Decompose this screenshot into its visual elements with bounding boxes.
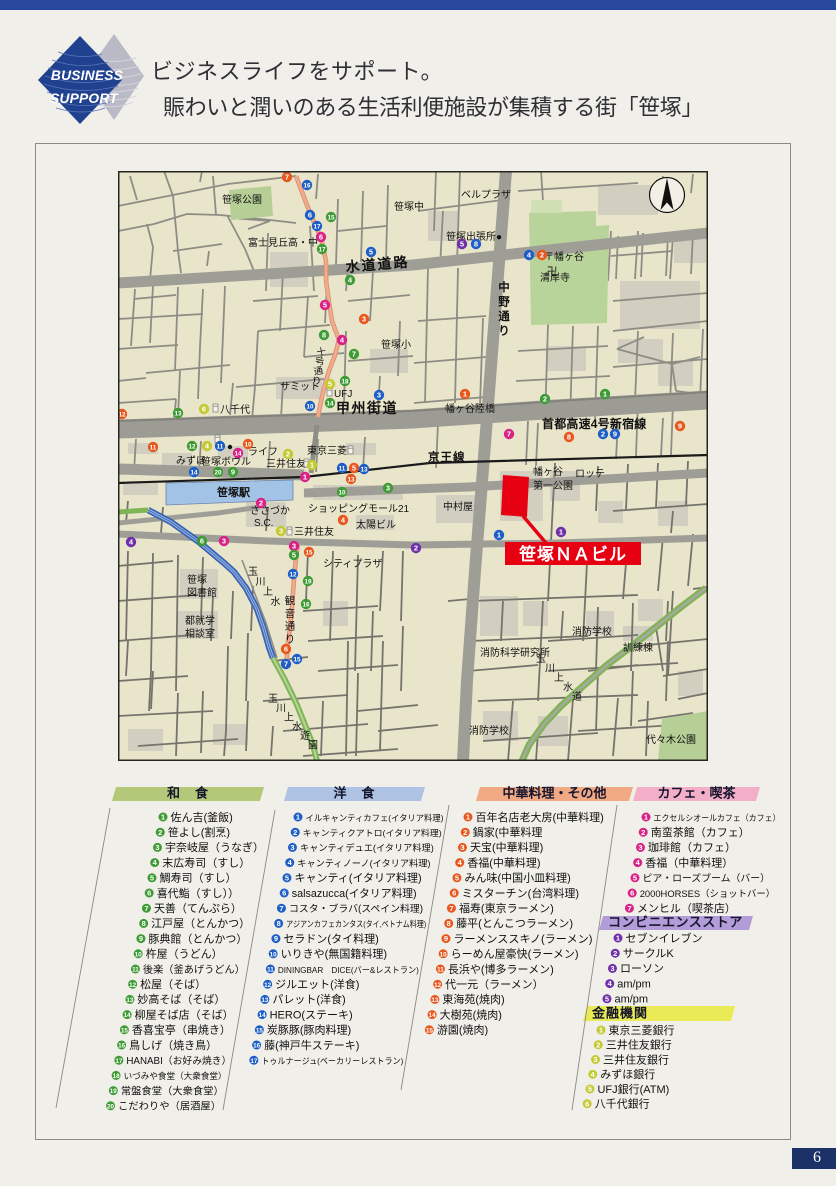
svg-text:am/pm: am/pm [617, 978, 651, 990]
svg-text:17: 17 [313, 224, 321, 231]
svg-text:天善（てんぷら）: 天善（てんぷら） [154, 901, 242, 915]
svg-text:18: 18 [113, 1073, 121, 1080]
svg-text:笹よし(割烹): 笹よし(割烹) [168, 825, 230, 839]
svg-text:3: 3 [638, 843, 642, 852]
svg-text:笹塚ボウル: 笹塚ボウル [201, 455, 251, 468]
svg-text:11: 11 [339, 466, 346, 473]
svg-text:笹塚中: 笹塚中 [394, 200, 424, 213]
svg-text:コスタ・ブラバ(スペイン料理): コスタ・ブラバ(スペイン料理) [289, 902, 423, 915]
svg-text:柳屋そば店（そば）: 柳屋そば店（そば） [135, 1007, 234, 1021]
svg-text:大樹苑(焼肉): 大樹苑(焼肉) [440, 1007, 502, 1021]
svg-text:後楽（釜あげうどん）: 後楽（釜あげうどん） [143, 963, 245, 976]
svg-text:シティプラザ: シティプラザ [323, 558, 382, 570]
svg-text:2: 2 [601, 430, 605, 439]
svg-text:3: 3 [290, 843, 294, 852]
svg-text:炭豚豚(豚肉料理): 炭豚豚(豚肉料理) [267, 1023, 351, 1037]
svg-text:5: 5 [328, 380, 332, 389]
svg-text:南蛮茶館（カフェ）: 南蛮茶館（カフェ） [651, 825, 750, 839]
svg-text:6: 6 [282, 889, 286, 898]
svg-text:11: 11 [437, 967, 444, 974]
svg-text:笹塚: 笹塚 [187, 573, 207, 586]
svg-text:2: 2 [286, 450, 290, 459]
svg-text:3: 3 [362, 315, 366, 324]
svg-text:3: 3 [279, 527, 283, 536]
svg-text:5: 5 [460, 240, 464, 249]
svg-text:12: 12 [434, 982, 442, 989]
svg-text:17: 17 [318, 247, 326, 254]
svg-text:19: 19 [304, 579, 312, 586]
svg-text:11: 11 [150, 445, 157, 452]
svg-text:13: 13 [261, 997, 269, 1004]
svg-text:ライフ: ライフ [248, 446, 278, 458]
svg-text:7: 7 [352, 350, 356, 359]
svg-text:ローソン: ローソン [620, 963, 664, 975]
svg-text:笹塚ＮＡビル: 笹塚ＮＡビル [519, 544, 627, 564]
svg-text:15: 15 [426, 1027, 434, 1034]
svg-text:京王線: 京王線 [428, 450, 466, 464]
svg-text:8: 8 [567, 433, 571, 442]
svg-text:キャンティデュエ(イタリア料理): キャンティデュエ(イタリア料理) [300, 842, 434, 853]
svg-text:消防科学研究所: 消防科学研究所 [480, 646, 550, 659]
svg-text:10: 10 [440, 951, 448, 958]
svg-text:14: 14 [234, 451, 242, 458]
svg-text:ミスターチン(台湾料理): ミスターチン(台湾料理) [462, 886, 579, 900]
svg-text:12: 12 [264, 982, 272, 989]
svg-text:トゥルナージュ(ベーカリーレストラン): トゥルナージュ(ベーカリーレストラン) [261, 1056, 403, 1066]
svg-text:アジアンカフェカンタス(タイ,ベトナム料理): アジアンカフェカンタス(タイ,ベトナム料理) [286, 918, 426, 929]
svg-text:9: 9 [274, 934, 278, 943]
svg-text:7: 7 [284, 660, 288, 669]
svg-text:藤(神戸牛ステーキ): 藤(神戸牛ステーキ) [264, 1038, 359, 1052]
svg-text:幡ヶ谷: 幡ヶ谷 [533, 465, 563, 478]
svg-text:松屋（そば）: 松屋（そば） [140, 977, 206, 991]
svg-text:8: 8 [474, 240, 478, 249]
svg-text:キャンティノーノ(イタリア料理): キャンティノーノ(イタリア料理) [297, 857, 430, 868]
svg-text:ロッテ: ロッテ [575, 469, 605, 480]
svg-text:首都高速4号新宿線: 首都高速4号新宿線 [542, 416, 646, 431]
svg-text:中村屋: 中村屋 [443, 500, 473, 513]
svg-text:ショッピングモール21: ショッピングモール21 [308, 502, 410, 515]
svg-text:3: 3 [292, 542, 296, 551]
svg-text:7: 7 [279, 904, 283, 913]
svg-text:6: 6 [308, 211, 312, 220]
svg-text:1: 1 [559, 528, 563, 537]
svg-text:みずほ銀行: みずほ銀行 [600, 1067, 655, 1081]
svg-text:5: 5 [455, 873, 459, 882]
svg-text:宇奈岐屋（うなぎ）: 宇奈岐屋（うなぎ） [165, 840, 264, 854]
svg-text:甲州街道: 甲州街道 [336, 400, 398, 416]
svg-text:7: 7 [449, 904, 453, 913]
svg-text:香福（中華料理）: 香福（中華料理） [645, 855, 733, 869]
svg-text:5: 5 [292, 551, 296, 560]
svg-text:20: 20 [107, 1103, 115, 1110]
svg-text:らーめん屋豪快(ラーメン): らーめん屋豪快(ラーメン) [451, 947, 579, 961]
svg-text:金融機関: 金融機関 [591, 1006, 648, 1021]
svg-text:am/pm: am/pm [614, 994, 648, 1006]
svg-text:3: 3 [386, 484, 390, 493]
svg-text:東海苑(焼肉): 東海苑(焼肉) [442, 992, 504, 1006]
svg-text:太陽ビル: 太陽ビル [356, 518, 396, 531]
svg-text:2: 2 [596, 1040, 600, 1049]
svg-text:東京三菱: 東京三菱 [307, 444, 347, 457]
svg-text:12: 12 [188, 444, 196, 451]
svg-text:BUSINESS: BUSINESS [51, 68, 124, 83]
svg-text:園: 園 [308, 740, 318, 752]
svg-text:7: 7 [627, 904, 631, 913]
svg-text:13: 13 [360, 467, 368, 474]
svg-text:長浜や(博多ラーメン): 長浜や(博多ラーメン) [448, 962, 554, 976]
svg-text:1: 1 [644, 813, 648, 822]
svg-text:2: 2 [540, 251, 544, 260]
svg-text:ベルプラザ: ベルプラザ [461, 189, 511, 201]
svg-text:通: 通 [285, 621, 296, 633]
svg-text:15: 15 [121, 1027, 129, 1034]
svg-text:都就学: 都就学 [185, 614, 215, 627]
svg-text:6: 6 [452, 889, 456, 898]
svg-text:1: 1 [161, 813, 165, 822]
svg-text:16: 16 [118, 1043, 126, 1050]
svg-text:6: 6 [202, 405, 206, 414]
svg-text:野: 野 [498, 296, 510, 309]
svg-text:S.C.: S.C. [254, 518, 273, 529]
svg-text:6: 6 [319, 233, 323, 242]
svg-text:14: 14 [190, 470, 198, 477]
svg-text:10: 10 [135, 951, 143, 958]
svg-text:5: 5 [323, 301, 327, 310]
svg-text:サミット: サミット [280, 381, 320, 393]
svg-text:12: 12 [118, 412, 126, 419]
svg-text:第一公園: 第一公園 [533, 479, 573, 492]
svg-text:5: 5 [588, 1085, 592, 1094]
svg-text:1: 1 [603, 390, 607, 399]
svg-text:ピア・ローズブーム（バー）: ピア・ローズブーム（バー） [642, 872, 770, 885]
svg-text:佐ん吉(釜飯): 佐ん吉(釜飯) [171, 810, 233, 824]
svg-text:いづみや食堂（大衆食堂）: いづみや食堂（大衆食堂） [124, 1070, 227, 1081]
svg-text:道: 道 [572, 690, 582, 703]
svg-text:ささづか: ささづか [250, 505, 290, 517]
svg-text:キャンティクアトロ(イタリア料理): キャンティクアトロ(イタリア料理) [303, 827, 442, 838]
svg-text:UFJ: UFJ [334, 389, 352, 400]
svg-text:6: 6 [284, 645, 288, 654]
svg-text:中華料理・その他: 中華料理・その他 [502, 786, 606, 801]
svg-text:観: 観 [285, 594, 296, 607]
svg-text:3: 3 [377, 391, 381, 400]
svg-text:16: 16 [253, 1043, 261, 1050]
svg-text:11: 11 [217, 444, 224, 451]
svg-text:代一元（ラーメン）: 代一元（ラーメン） [445, 978, 544, 991]
svg-text:清岸寺: 清岸寺 [540, 271, 570, 284]
svg-text:3: 3 [460, 843, 464, 852]
svg-text:9: 9 [613, 430, 617, 439]
svg-text:鍋家(中華料理: 鍋家(中華料理 [473, 825, 543, 839]
svg-text:2: 2 [293, 828, 297, 837]
svg-text:2: 2 [158, 828, 162, 837]
svg-text:代々木公園: 代々木公園 [646, 734, 696, 746]
svg-text:2: 2 [613, 949, 617, 958]
svg-text:HERO(ステーキ): HERO(ステーキ) [270, 1009, 353, 1021]
svg-text:HANABI（お好み焼き）: HANABI（お好み焼き） [126, 1055, 231, 1067]
svg-text:13: 13 [347, 477, 355, 484]
svg-text:1: 1 [466, 813, 470, 822]
svg-text:20: 20 [214, 470, 222, 477]
svg-text:コンビニエンスストア: コンビニエンスストア [608, 915, 743, 930]
svg-text:セラドン(タイ料理): セラドン(タイ料理) [283, 931, 378, 945]
svg-text:游園(焼肉): 游園(焼肉) [437, 1024, 488, 1037]
svg-text:6: 6 [630, 889, 634, 898]
svg-text:1: 1 [303, 473, 307, 482]
svg-text:福寿(東京ラーメン): 福寿(東京ラーメン) [459, 901, 554, 915]
svg-text:ラーメンススキノ(ラーメン): ラーメンススキノ(ラーメン) [453, 933, 592, 945]
svg-text:中: 中 [498, 280, 510, 294]
svg-text:1: 1 [310, 461, 314, 470]
svg-text:17: 17 [115, 1058, 123, 1065]
svg-text:水: 水 [271, 596, 281, 608]
svg-text:こだわりや（居酒屋）: こだわりや（居酒屋） [118, 1100, 221, 1113]
svg-text:10: 10 [270, 951, 278, 958]
svg-text:12: 12 [129, 982, 137, 989]
svg-text:笹塚駅: 笹塚駅 [217, 485, 250, 499]
svg-text:相談室: 相談室 [185, 627, 215, 640]
svg-text:セブンイレブン: セブンイレブン [626, 931, 703, 945]
svg-text:5: 5 [369, 248, 373, 257]
svg-text:1: 1 [616, 934, 620, 943]
svg-text:7: 7 [144, 904, 148, 913]
svg-text:笹塚小: 笹塚小 [381, 338, 411, 351]
svg-text:15: 15 [256, 1027, 264, 1034]
svg-text:5: 5 [150, 873, 154, 882]
svg-text:サークルK: サークルK [623, 947, 675, 960]
svg-text:り: り [498, 325, 510, 338]
svg-text:鯛寿司（すし）: 鯛寿司（すし） [159, 871, 236, 885]
svg-text:5: 5 [605, 994, 609, 1003]
svg-text:パレット(洋食): パレット(洋食) [272, 992, 345, 1006]
svg-text:3: 3 [593, 1055, 597, 1064]
svg-text:藤平(とんこつラーメン): 藤平(とんこつラーメン) [456, 917, 573, 930]
svg-text:香福(中華料理): 香福(中華料理) [467, 855, 540, 869]
svg-text:富士見丘高・中: 富士見丘高・中 [248, 236, 318, 249]
svg-text:メンヒル（喫茶店）: メンヒル（喫茶店） [637, 901, 736, 915]
svg-text:三井住友: 三井住友 [294, 525, 334, 538]
svg-text:喜代鮨（すし））: 喜代鮨（すし）） [157, 886, 240, 900]
svg-text:9: 9 [139, 934, 143, 943]
svg-text:14: 14 [326, 401, 334, 408]
svg-text:八千代: 八千代 [220, 404, 250, 416]
svg-text:7: 7 [507, 430, 511, 439]
svg-text:カフェ・喫茶: カフェ・喫茶 [657, 786, 736, 801]
svg-text:1: 1 [463, 390, 467, 399]
svg-text:ジルエット(洋食): ジルエット(洋食) [275, 977, 359, 991]
svg-text:末広寿司（すし）: 末広寿司（すし） [162, 855, 250, 869]
svg-text:香喜宝亭（串焼き）: 香喜宝亭（串焼き） [132, 1023, 231, 1037]
svg-text:百年名店老大房(中華料理): 百年名店老大房(中華料理) [476, 810, 604, 824]
svg-text:3: 3 [610, 964, 614, 973]
svg-text:11: 11 [132, 967, 139, 974]
svg-text:幡ヶ谷陸橋: 幡ヶ谷陸橋 [445, 402, 495, 415]
svg-text:9: 9 [231, 468, 235, 477]
svg-text:16: 16 [303, 183, 311, 190]
svg-text:3: 3 [155, 843, 159, 852]
svg-text:鳥しげ（焼き鳥）: 鳥しげ（焼き鳥） [129, 1038, 217, 1052]
svg-text:salsazucca(イタリア料理): salsazucca(イタリア料理) [292, 886, 417, 900]
svg-text:14: 14 [259, 1012, 267, 1019]
svg-text:3: 3 [222, 537, 226, 546]
svg-text:2: 2 [259, 499, 263, 508]
svg-text:6: 6 [200, 537, 204, 546]
svg-text:消防学校: 消防学校 [469, 724, 509, 737]
svg-text:8: 8 [447, 919, 451, 928]
svg-text:11: 11 [267, 967, 274, 974]
svg-text:1: 1 [296, 813, 300, 822]
svg-text:〒幡ヶ谷: 〒幡ヶ谷 [544, 250, 584, 263]
svg-text:2: 2 [414, 544, 418, 553]
svg-text:1: 1 [497, 531, 501, 540]
svg-text:13: 13 [126, 997, 134, 1004]
svg-text:八千代銀行: 八千代銀行 [595, 1097, 650, 1111]
svg-text:キャンティ(イタリア料理): キャンティ(イタリア料理) [294, 871, 421, 885]
svg-text:江戸屋（とんかつ）: 江戸屋（とんかつ） [151, 917, 250, 930]
svg-text:14: 14 [124, 1012, 132, 1019]
svg-text:通: 通 [498, 310, 510, 323]
svg-text:10: 10 [244, 442, 252, 449]
svg-text:5: 5 [285, 873, 289, 882]
svg-text:18: 18 [341, 379, 349, 386]
svg-text:和 食: 和 食 [167, 786, 209, 801]
svg-text:三井住友銀行: 三井住友銀行 [603, 1052, 669, 1066]
svg-text:洋 食: 洋 食 [333, 786, 375, 801]
svg-text:10: 10 [306, 404, 314, 411]
svg-text:天宝(中華料理): 天宝(中華料理) [470, 840, 543, 854]
svg-text:SUPPORT: SUPPORT [50, 91, 119, 106]
svg-text:音: 音 [285, 607, 296, 620]
svg-text:UFJ銀行(ATM): UFJ銀行(ATM) [597, 1082, 669, 1096]
svg-text:常盤食堂（大衆食堂）: 常盤食堂（大衆食堂） [121, 1084, 224, 1097]
svg-text:珈琲館（カフェ）: 珈琲館（カフェ） [648, 840, 736, 854]
svg-text:笹塚公園: 笹塚公園 [222, 193, 262, 206]
svg-text:2000HORSES（ショットバー）: 2000HORSES（ショットバー） [640, 888, 775, 899]
svg-text:みん味(中国小皿料理): みん味(中国小皿料理) [464, 871, 570, 885]
svg-text:15: 15 [327, 215, 335, 222]
svg-text:13: 13 [174, 411, 182, 418]
svg-text:消防学校: 消防学校 [572, 625, 612, 638]
svg-text:訓練棟: 訓練棟 [623, 641, 653, 654]
svg-text:5: 5 [633, 873, 637, 882]
svg-text:エクセルシオールカフェ（カフェ）: エクセルシオールカフェ（カフェ） [654, 813, 781, 823]
svg-text:三井住友: 三井住友 [266, 457, 306, 470]
svg-text:2: 2 [641, 828, 645, 837]
svg-text:19: 19 [110, 1088, 118, 1095]
svg-text:東京三菱銀行: 東京三菱銀行 [609, 1023, 675, 1037]
svg-text:13: 13 [431, 997, 439, 1004]
svg-text:6: 6 [147, 889, 151, 898]
svg-text:2: 2 [463, 828, 467, 837]
svg-text:15: 15 [293, 657, 301, 664]
svg-text:妙高そば（そば）: 妙高そば（そば） [137, 992, 225, 1006]
svg-text:17: 17 [250, 1058, 258, 1065]
svg-text:1: 1 [599, 1026, 603, 1035]
svg-text:6: 6 [585, 1099, 589, 1108]
svg-text:5: 5 [352, 464, 356, 473]
svg-text:16: 16 [302, 602, 310, 609]
svg-text:15: 15 [305, 550, 313, 557]
svg-text:イルキャンティカフェ(イタリア料理): イルキャンティカフェ(イタリア料理) [306, 812, 444, 823]
svg-text:8: 8 [142, 919, 146, 928]
svg-text:豚典館（とんかつ）: 豚典館（とんかつ） [148, 931, 247, 945]
svg-text:図書館: 図書館 [187, 586, 217, 599]
svg-text:7: 7 [285, 173, 289, 182]
svg-text:り: り [285, 633, 296, 645]
svg-text:8: 8 [277, 919, 281, 928]
svg-text:いりきや(無国籍料理): いりきや(無国籍料理) [281, 947, 387, 961]
svg-text:12: 12 [289, 572, 297, 579]
svg-text:2: 2 [543, 395, 547, 404]
svg-text:9: 9 [678, 422, 682, 431]
svg-text:三井住友銀行: 三井住友銀行 [606, 1038, 672, 1052]
svg-text:14: 14 [429, 1012, 437, 1019]
svg-text:DININGBAR DICE(バー&レストラン): DININGBAR DICE(バー&レストラン) [278, 965, 419, 975]
svg-text:9: 9 [444, 934, 448, 943]
svg-text:杵屋（うどん）: 杵屋（うどん） [146, 947, 223, 961]
svg-text:8: 8 [322, 331, 326, 340]
svg-text:10: 10 [338, 490, 346, 497]
